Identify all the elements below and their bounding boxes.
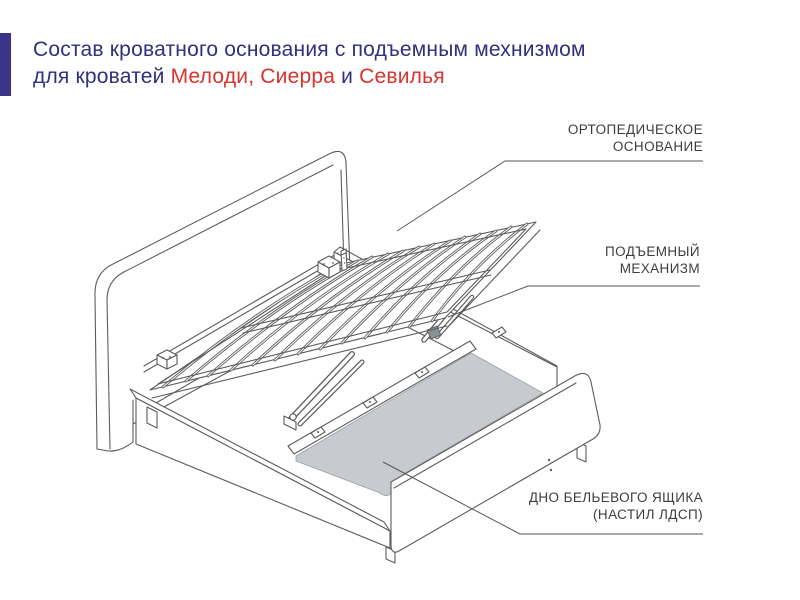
callout-bottom-line1: ДНО БЕЛЬЕВОГО ЯЩИКА	[529, 490, 703, 507]
callout-lift-line1: ПОДЪЕМНЫЙ	[605, 244, 700, 261]
leader-lift	[448, 286, 700, 317]
callout-orthopedic-line2: ОСНОВАНИЕ	[568, 139, 703, 156]
callout-lift-line2: МЕХАНИЗМ	[605, 261, 700, 278]
callout-drawer-bottom: ДНО БЕЛЬЕВОГО ЯЩИКА (НАСТИЛ ЛДСП)	[529, 490, 703, 523]
leader-orthopedic	[397, 161, 703, 231]
callout-lift-mechanism: ПОДЪЕМНЫЙ МЕХАНИЗМ	[605, 244, 700, 277]
page: Состав кроватного основания с подъемным …	[0, 0, 800, 600]
callout-orthopedic-base: ОРТОПЕДИЧЕСКОЕ ОСНОВАНИЕ	[568, 122, 703, 155]
callout-orthopedic-line1: ОРТОПЕДИЧЕСКОЕ	[568, 122, 703, 139]
callout-bottom-line2: (НАСТИЛ ЛДСП)	[529, 507, 703, 524]
